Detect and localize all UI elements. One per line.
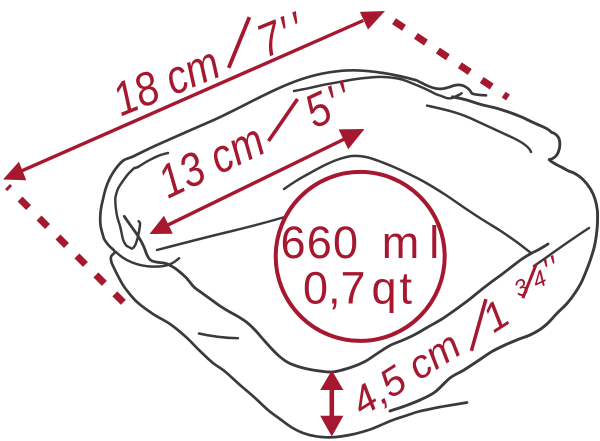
svg-text:qt: qt: [372, 262, 416, 313]
svg-text:0,7: 0,7: [303, 262, 366, 313]
svg-text:ml: ml: [382, 217, 449, 268]
svg-text:660: 660: [281, 217, 360, 268]
